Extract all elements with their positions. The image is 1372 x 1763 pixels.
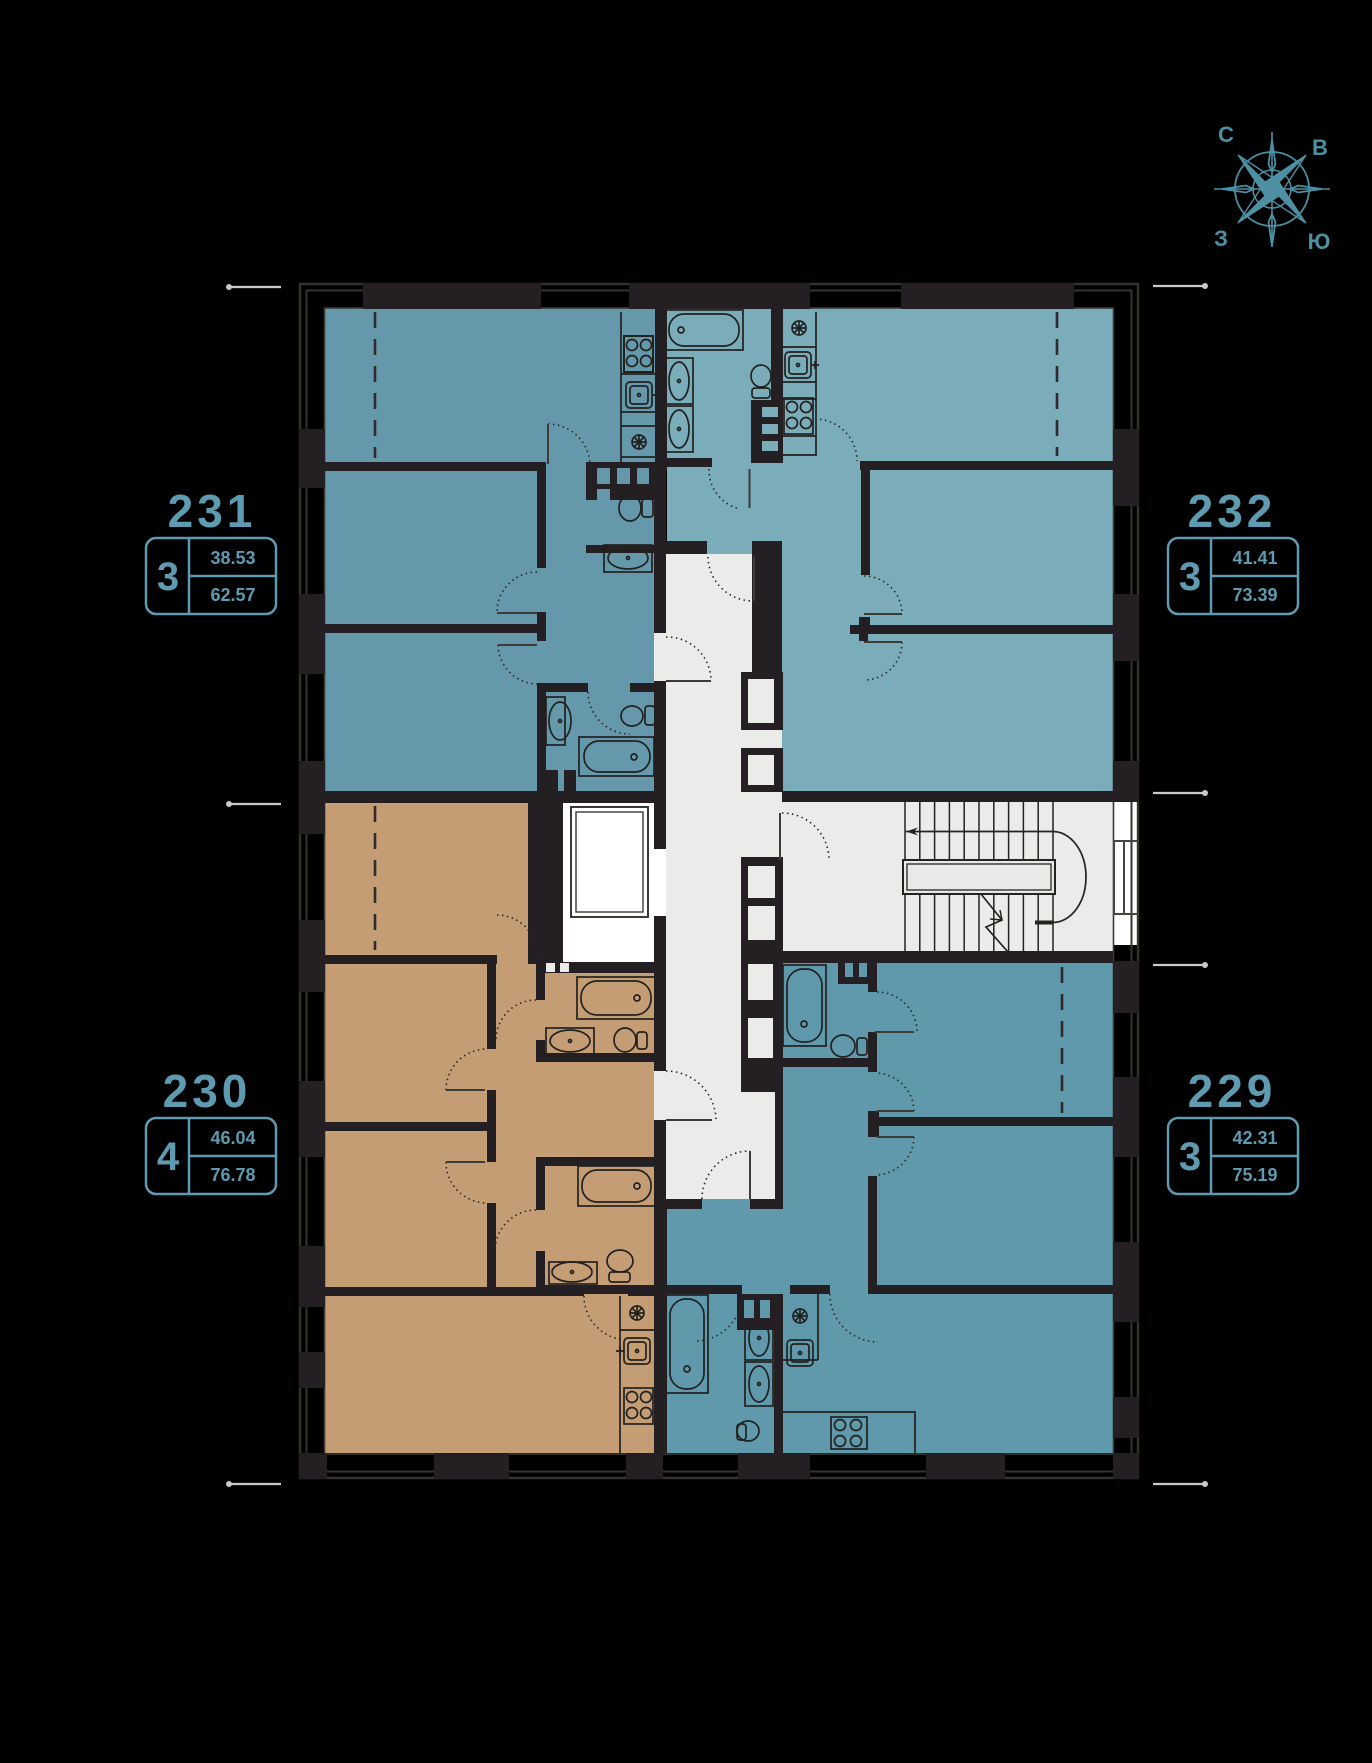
svg-text:229: 229 [1188, 1065, 1277, 1117]
svg-text:73.39: 73.39 [1232, 585, 1277, 605]
svg-text:С: С [1218, 122, 1234, 147]
svg-text:3: 3 [157, 555, 179, 599]
svg-text:4: 4 [157, 1135, 180, 1179]
svg-text:38.53: 38.53 [210, 548, 255, 568]
svg-text:З: З [1214, 226, 1228, 251]
svg-text:230: 230 [163, 1065, 252, 1117]
svg-text:232: 232 [1188, 485, 1277, 537]
svg-text:62.57: 62.57 [210, 585, 255, 605]
svg-text:76.78: 76.78 [210, 1165, 255, 1185]
svg-text:3: 3 [1179, 1135, 1201, 1179]
svg-text:3: 3 [1179, 555, 1201, 599]
svg-text:Ю: Ю [1308, 229, 1331, 254]
svg-text:В: В [1312, 135, 1328, 160]
svg-text:231: 231 [168, 485, 257, 537]
svg-text:75.19: 75.19 [1232, 1165, 1277, 1185]
svg-text:42.31: 42.31 [1232, 1128, 1277, 1148]
svg-text:46.04: 46.04 [210, 1128, 255, 1148]
svg-text:41.41: 41.41 [1232, 548, 1277, 568]
